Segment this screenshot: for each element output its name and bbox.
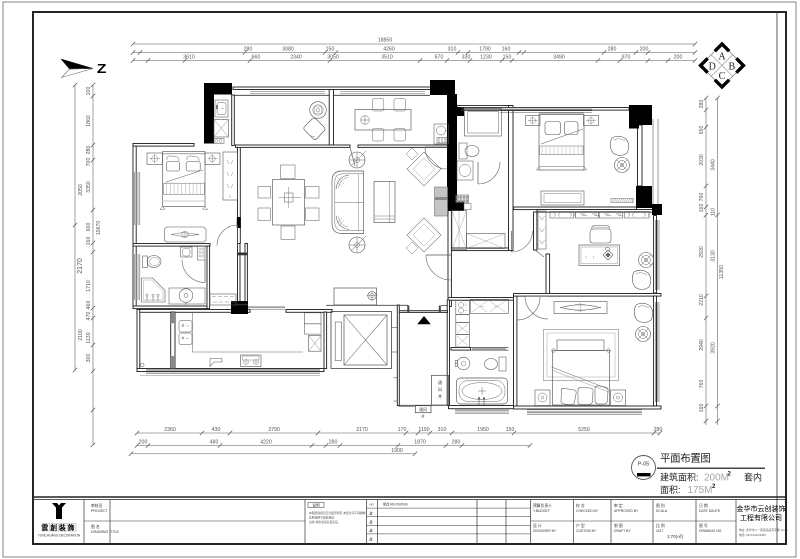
svg-text:2940: 2940 (699, 339, 705, 351)
svg-text:1790: 1790 (479, 47, 491, 53)
svg-text:P-05: P-05 (638, 462, 650, 468)
svg-text:700: 700 (86, 158, 92, 167)
svg-text:10670: 10670 (96, 221, 102, 236)
svg-text:3920: 3920 (711, 342, 717, 354)
svg-text:970: 970 (622, 55, 631, 61)
svg-text:4220: 4220 (260, 440, 272, 446)
svg-text:C: C (719, 71, 726, 82)
svg-text:井: 井 (421, 414, 425, 419)
svg-text:NO.: NO. (370, 503, 375, 507)
svg-text:SCALA: SCALA (656, 509, 668, 513)
svg-text:DRAWING NO.: DRAWING NO. (699, 529, 722, 533)
svg-text:修改 REVISIONS: 修改 REVISIONS (383, 502, 408, 507)
svg-text:5250: 5250 (578, 427, 590, 433)
svg-text:330: 330 (462, 55, 471, 61)
svg-text:平面布置图: 平面布置图 (660, 453, 711, 465)
svg-text:150: 150 (503, 55, 512, 61)
svg-text:200: 200 (139, 440, 148, 446)
svg-text:200M: 200M (704, 473, 729, 484)
svg-text:2170: 2170 (77, 258, 84, 274)
svg-text:1130: 1130 (86, 332, 92, 343)
svg-text:760: 760 (699, 193, 705, 202)
svg-text:160: 160 (699, 404, 705, 413)
svg-text:APPROVED BY: APPROVED BY (614, 509, 639, 513)
svg-text:井: 井 (438, 393, 442, 400)
svg-text:1190: 1190 (418, 427, 429, 433)
svg-text:电话: 0579-82223456: 电话: 0579-82223456 (739, 533, 766, 537)
svg-text:4260: 4260 (383, 47, 395, 53)
svg-text:A: A (718, 52, 726, 63)
svg-text:3510: 3510 (381, 55, 393, 61)
svg-text:DATE DAUTE: DATE DAUTE (699, 509, 721, 513)
svg-text:3490: 3490 (553, 55, 565, 61)
svg-text:3790: 3790 (268, 427, 280, 433)
svg-text:本图纸版权归云创装饰所有,未经许可不得翻制、: 本图纸版权归云创装饰所有,未经许可不得翻制、 (309, 511, 369, 515)
svg-text:2210: 2210 (699, 294, 705, 306)
svg-text:CUSTOM BY: CUSTOM BY (576, 529, 597, 533)
svg-text:复制或用于其他用途,: 复制或用于其他用途, (309, 516, 335, 520)
svg-text:工程有限公司: 工程有限公司 (740, 513, 782, 522)
svg-text:1230: 1230 (480, 55, 492, 61)
svg-text:760: 760 (699, 380, 705, 389)
svg-text:B: B (728, 61, 735, 72)
svg-text:说明: 说明 (312, 503, 320, 508)
svg-text:460: 460 (86, 301, 92, 310)
svg-text:200: 200 (640, 47, 649, 53)
svg-text:470: 470 (86, 312, 92, 321)
svg-text:310: 310 (438, 427, 447, 433)
svg-text:2050: 2050 (78, 184, 84, 196)
svg-text:Z: Z (97, 62, 107, 76)
svg-text:D: D (709, 61, 716, 72)
svg-text:280: 280 (329, 440, 338, 446)
svg-text:175M: 175M (688, 485, 713, 496)
svg-text:280: 280 (654, 427, 663, 433)
svg-text:DRAFT BY: DRAFT BY (614, 529, 631, 533)
svg-text:PROJECT: PROJECT (91, 509, 109, 513)
svg-text:CHECKED BY: CHECKED BY (576, 509, 599, 513)
svg-text:1870: 1870 (414, 440, 426, 446)
svg-text:1900: 1900 (391, 448, 403, 454)
svg-text:480: 480 (210, 440, 219, 446)
svg-text:300: 300 (86, 354, 92, 363)
svg-text:↑: ↑ (585, 255, 588, 261)
svg-text:160: 160 (86, 237, 92, 246)
svg-text:金华市云创装饰: 金华市云创装饰 (737, 504, 786, 513)
svg-text:日 期: 日 期 (699, 503, 708, 508)
svg-text:170: 170 (398, 427, 407, 433)
svg-text:100: 100 (86, 87, 92, 96)
svg-text:审核员: 审核员 (91, 503, 103, 508)
svg-text:建筑面积:: 建筑面积: (660, 472, 699, 483)
svg-text:150: 150 (326, 47, 335, 53)
svg-text:2360: 2360 (164, 427, 176, 433)
svg-text:DRAWING TITLE: DRAWING TITLE (91, 530, 120, 534)
svg-text:雲創裝飾: 雲創裝飾 (41, 523, 76, 532)
svg-text:160: 160 (699, 204, 705, 213)
svg-text:地址: 金华市八一南街昌盛写字楼 19-03: 地址: 金华市八一南街昌盛写字楼 19-03 (739, 528, 788, 532)
svg-text:1860: 1860 (86, 115, 92, 127)
svg-text:660: 660 (252, 55, 261, 61)
svg-text:280: 280 (244, 47, 253, 53)
svg-text:比 例: 比 例 (656, 523, 665, 528)
svg-text:3130: 3130 (711, 250, 717, 262)
svg-text:审 定: 审 定 (614, 503, 623, 508)
svg-text:18850: 18850 (378, 38, 393, 44)
svg-text:11350: 11350 (719, 265, 725, 279)
svg-text:预算负责人: 预算负责人 (533, 503, 552, 508)
svg-text:2100: 2100 (78, 329, 84, 341)
svg-text:650: 650 (699, 126, 705, 135)
svg-text:430: 430 (212, 427, 221, 433)
svg-text:1710: 1710 (86, 280, 92, 292)
svg-text:280: 280 (608, 47, 617, 53)
svg-text:↑: ↑ (592, 255, 595, 261)
svg-text:1950: 1950 (477, 427, 489, 433)
svg-text:图 名: 图 名 (91, 524, 100, 529)
svg-text:3440: 3440 (711, 159, 717, 171)
svg-text:Y.BUDGET: Y.BUDGET (533, 509, 550, 513)
svg-text:2030: 2030 (699, 154, 705, 166)
svg-text:校 对: 校 对 (576, 503, 585, 508)
svg-text:图 号: 图 号 (699, 523, 708, 528)
svg-text:面积:: 面积: (660, 484, 681, 495)
svg-text:280: 280 (699, 100, 705, 109)
svg-text:160: 160 (502, 47, 511, 53)
svg-text:设 计: 设 计 (533, 523, 542, 528)
svg-text:图 别: 图 别 (656, 503, 665, 508)
svg-text:280: 280 (86, 146, 92, 155)
svg-text:违者,将依法追究其责任。: 违者,将依法追究其责任。 (309, 520, 341, 524)
svg-text:制 图: 制 图 (614, 523, 623, 528)
svg-text:200: 200 (674, 55, 683, 61)
svg-text:3610: 3610 (183, 55, 195, 61)
svg-text:套内: 套内 (744, 472, 762, 483)
svg-text:YUNCHUANG DECORATION: YUNCHUANG DECORATION (38, 534, 81, 538)
svg-text:2920: 2920 (699, 246, 705, 258)
svg-text:670: 670 (435, 55, 444, 61)
svg-text:600: 600 (86, 223, 92, 232)
svg-text:110: 110 (711, 208, 717, 216)
svg-text:2170: 2170 (356, 427, 368, 433)
svg-text:3050: 3050 (327, 55, 339, 61)
svg-text:2340: 2340 (290, 55, 302, 61)
svg-text:DESIGNER BY: DESIGNER BY (533, 529, 557, 533)
svg-text:1:70(㎡): 1:70(㎡) (667, 533, 684, 539)
svg-text:3080: 3080 (282, 47, 294, 53)
svg-text:户 型: 户 型 (576, 523, 585, 528)
svg-text:2017: 2017 (656, 529, 664, 533)
svg-text:310: 310 (448, 47, 457, 53)
svg-text:通风: 通风 (419, 406, 427, 412)
svg-text:280: 280 (452, 440, 461, 446)
svg-text:3350: 3350 (86, 181, 92, 193)
svg-text:150: 150 (506, 427, 515, 433)
